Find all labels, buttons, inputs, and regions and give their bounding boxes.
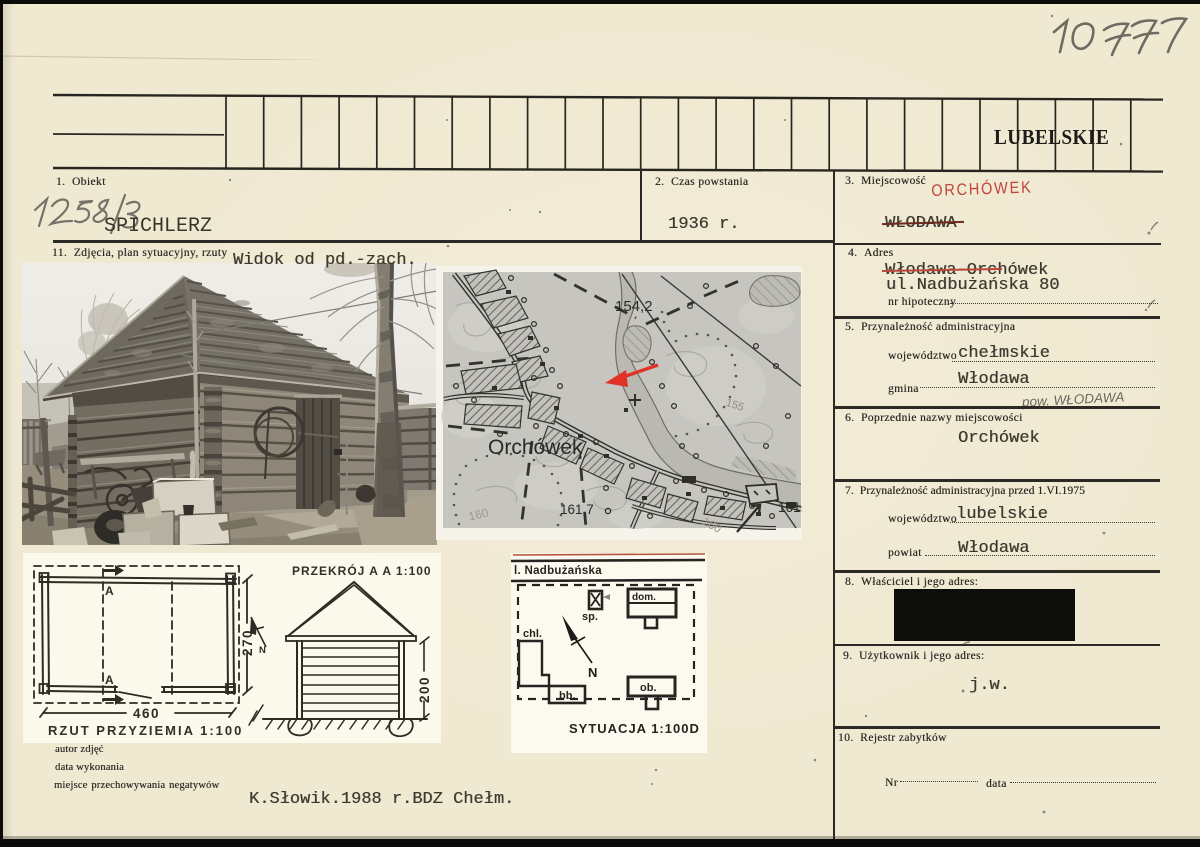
svg-text:bb.: bb.: [559, 690, 576, 702]
svg-text:200: 200: [417, 676, 432, 703]
svg-text:sp.: sp.: [582, 611, 598, 623]
svg-text:161,5: 161,5: [778, 500, 802, 515]
svg-text:ob.: ob.: [640, 682, 657, 694]
svg-text:RZUT PRZYZIEMIA 1:100: RZUT PRZYZIEMIA 1:100: [48, 723, 243, 738]
svg-text:SYTUACJA 1:100D: SYTUACJA 1:100D: [569, 721, 700, 736]
svg-text:Orchówek: Orchówek: [488, 436, 583, 459]
svg-text:154,2: 154,2: [615, 298, 653, 315]
svg-text:A: A: [105, 584, 114, 598]
svg-text:l. Nadbużańska: l. Nadbużańska: [514, 565, 602, 577]
svg-text:A: A: [105, 673, 114, 687]
svg-text:N: N: [588, 665, 597, 680]
svg-text:N: N: [259, 645, 266, 656]
svg-text:460: 460: [133, 706, 160, 721]
svg-text:PRZEKRÓJ A A 1:100: PRZEKRÓJ A A 1:100: [292, 563, 432, 578]
svg-text:chl.: chl.: [523, 628, 542, 640]
svg-text:dom.: dom.: [632, 592, 656, 603]
svg-text:161,7: 161,7: [560, 502, 594, 517]
